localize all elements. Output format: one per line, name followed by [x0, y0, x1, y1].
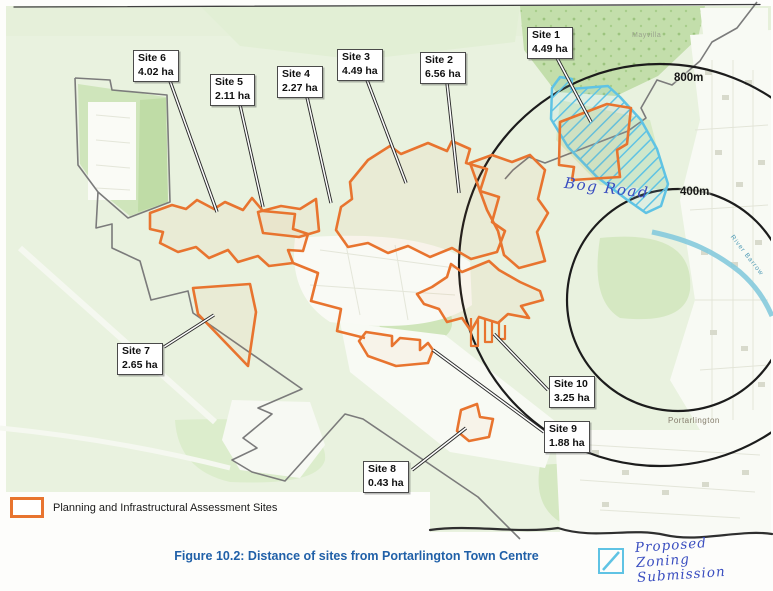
scanned-figure-page: Site 1 4.49 ha Site 2 6.56 ha Site 3 4.4…: [0, 0, 773, 591]
map-canvas: [0, 0, 773, 591]
